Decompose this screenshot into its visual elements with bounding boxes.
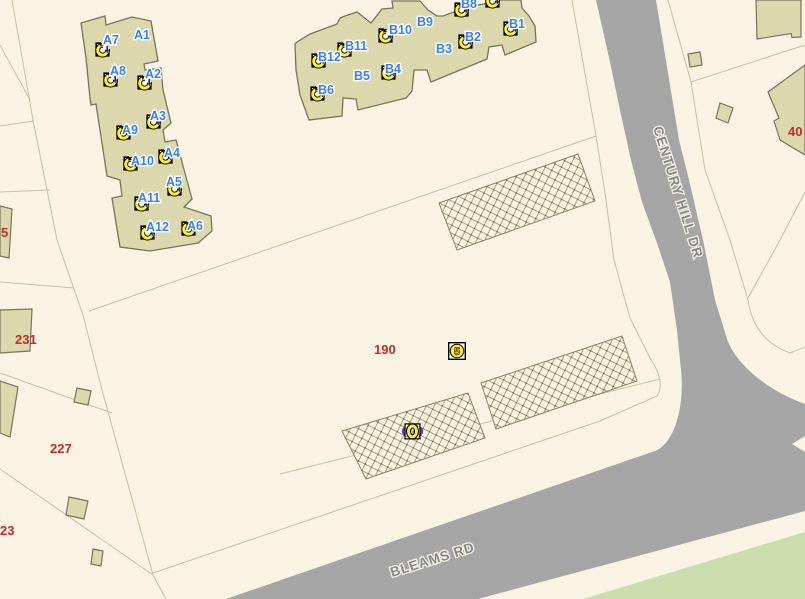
svg-text:A11: A11	[138, 191, 160, 205]
svg-text:5: 5	[1, 225, 8, 240]
svg-text:A3: A3	[150, 109, 166, 123]
svg-text:B11: B11	[345, 39, 367, 53]
svg-text:A12: A12	[146, 220, 169, 234]
svg-text:B4: B4	[385, 62, 401, 76]
svg-text:A1: A1	[134, 28, 150, 42]
svg-text:23: 23	[0, 523, 14, 538]
svg-text:A2: A2	[145, 67, 161, 81]
svg-text:A7: A7	[103, 33, 119, 47]
svg-text:B2: B2	[465, 30, 481, 44]
svg-text:B8: B8	[461, 0, 477, 11]
svg-text:B1: B1	[509, 17, 525, 31]
svg-text:B6: B6	[318, 83, 334, 97]
svg-text:40: 40	[788, 124, 802, 139]
svg-text:B12: B12	[318, 50, 341, 64]
svg-text:A9: A9	[122, 123, 138, 137]
svg-text:B3: B3	[436, 42, 452, 56]
svg-text:B9: B9	[417, 15, 433, 29]
svg-text:A8: A8	[110, 64, 126, 78]
svg-text:227: 227	[50, 441, 72, 456]
svg-text:231: 231	[15, 332, 37, 347]
svg-text:B10: B10	[389, 23, 412, 37]
svg-text:190: 190	[374, 342, 396, 357]
svg-text:A6: A6	[187, 219, 203, 233]
svg-text:A4: A4	[164, 146, 180, 160]
svg-text:5: 5	[454, 346, 460, 358]
svg-text:A5: A5	[166, 175, 182, 189]
svg-text:A10: A10	[131, 154, 154, 168]
svg-text:B5: B5	[354, 69, 370, 83]
